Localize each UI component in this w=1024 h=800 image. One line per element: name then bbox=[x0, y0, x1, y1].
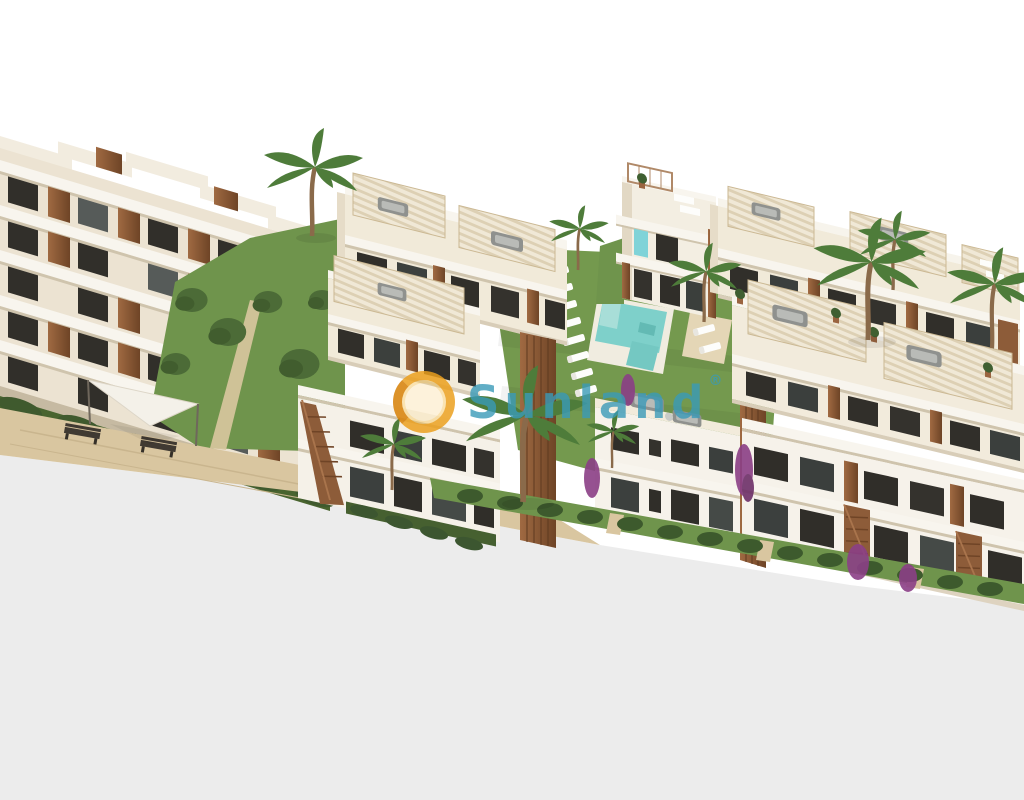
grass-hill bbox=[596, 238, 624, 304]
pool-deck bbox=[682, 312, 732, 364]
render-canvas: Sunland ® bbox=[0, 0, 1024, 800]
turquoise-glass-door bbox=[634, 229, 648, 258]
architectural-render bbox=[0, 0, 1024, 800]
communal-swimming-pool bbox=[587, 295, 674, 374]
